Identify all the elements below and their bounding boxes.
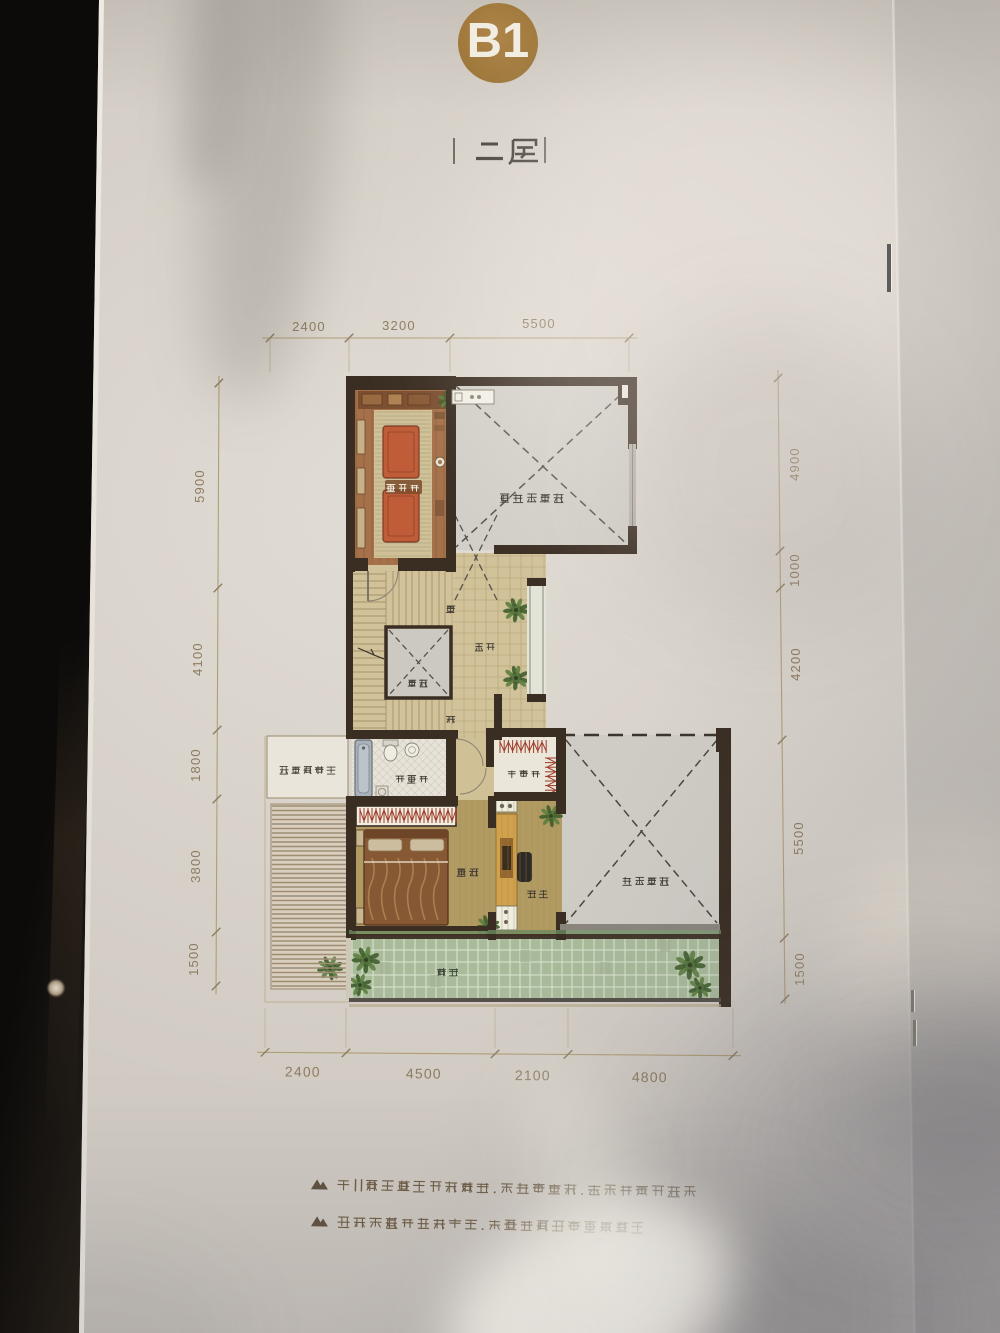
svg-text:1000: 1000 xyxy=(787,553,802,587)
svg-text:3200: 3200 xyxy=(382,318,416,333)
svg-text:5900: 5900 xyxy=(192,469,207,503)
svg-text:4800: 4800 xyxy=(632,1069,668,1085)
svg-text:3800: 3800 xyxy=(188,849,203,883)
svg-text:4200: 4200 xyxy=(788,647,803,681)
svg-text:4900: 4900 xyxy=(787,447,802,481)
svg-text:4500: 4500 xyxy=(406,1065,442,1081)
svg-text:2400: 2400 xyxy=(285,1063,321,1079)
svg-text:1500: 1500 xyxy=(186,942,201,976)
svg-text:2100: 2100 xyxy=(515,1067,551,1083)
svg-text:5500: 5500 xyxy=(522,316,556,331)
svg-text:4100: 4100 xyxy=(190,642,205,676)
svg-text:1500: 1500 xyxy=(792,952,807,986)
svg-text:1800: 1800 xyxy=(188,748,203,782)
svg-text:5500: 5500 xyxy=(791,821,806,855)
svg-text:2400: 2400 xyxy=(292,319,326,334)
